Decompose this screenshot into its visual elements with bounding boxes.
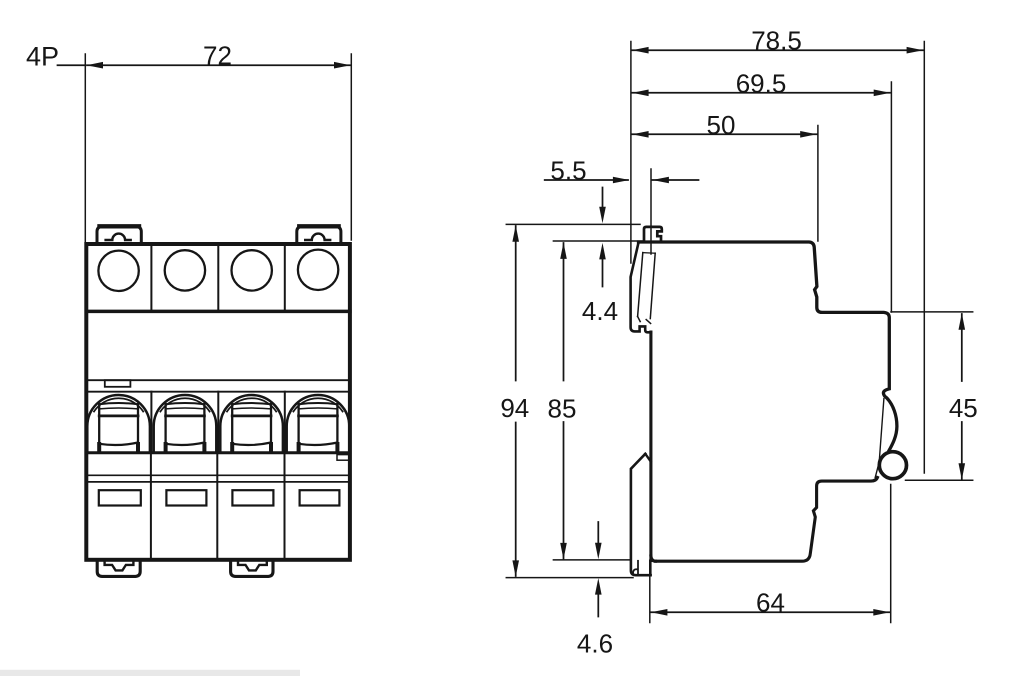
svg-text:85: 85 — [548, 394, 577, 424]
svg-text:5.5: 5.5 — [550, 156, 586, 186]
svg-text:72: 72 — [203, 41, 232, 71]
svg-text:45: 45 — [949, 393, 978, 423]
svg-text:4.4: 4.4 — [582, 296, 618, 326]
svg-text:4.6: 4.6 — [577, 629, 613, 659]
svg-text:78.5: 78.5 — [751, 26, 802, 56]
svg-text:64: 64 — [756, 588, 785, 618]
svg-text:4P: 4P — [26, 42, 59, 72]
svg-text:69.5: 69.5 — [736, 68, 787, 98]
svg-text:94: 94 — [500, 393, 529, 423]
svg-text:50: 50 — [707, 110, 736, 140]
